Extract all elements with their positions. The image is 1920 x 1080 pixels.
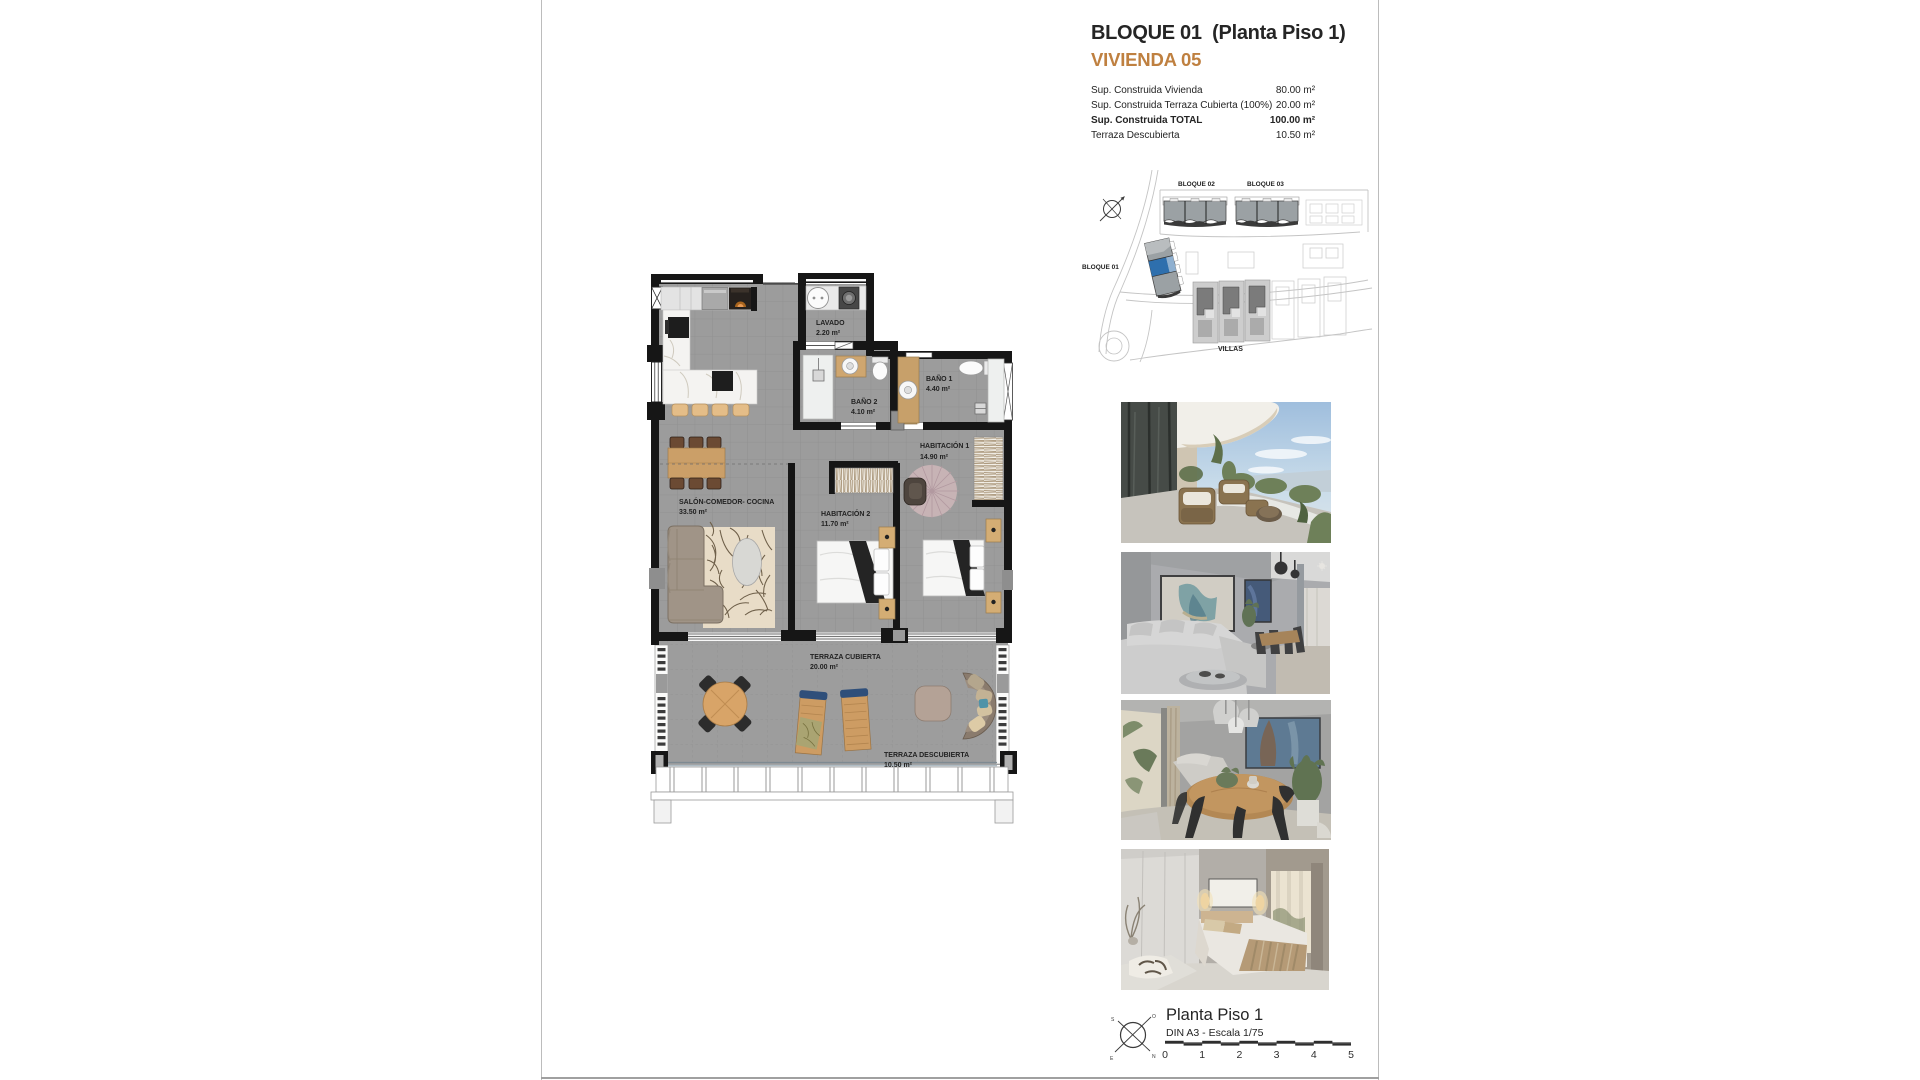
svg-text:SALÓN-COMEDOR- COCINA: SALÓN-COMEDOR- COCINA [679, 497, 774, 506]
svg-text:1: 1 [1199, 1049, 1205, 1061]
svg-text:20.00 m²: 20.00 m² [810, 664, 839, 671]
svg-text:HABITACIÓN 2: HABITACIÓN 2 [821, 509, 870, 518]
svg-text:4: 4 [1311, 1049, 1317, 1061]
svg-text:S: S [1111, 1017, 1115, 1023]
svg-text:N: N [1152, 1054, 1156, 1060]
svg-text:5: 5 [1348, 1049, 1354, 1061]
svg-text:4.10 m²: 4.10 m² [851, 409, 876, 416]
svg-text:3: 3 [1274, 1049, 1280, 1061]
svg-text:E: E [1110, 1056, 1114, 1062]
svg-text:10.50 m²: 10.50 m² [884, 762, 913, 769]
svg-text:14.90 m²: 14.90 m² [920, 454, 949, 461]
svg-text:BLOQUE 03: BLOQUE 03 [1247, 181, 1284, 188]
svg-text:HABITACIÓN 1: HABITACIÓN 1 [920, 441, 969, 450]
svg-text:VILLAS: VILLAS [1218, 346, 1243, 353]
svg-text:O: O [1152, 1014, 1156, 1020]
svg-text:LAVADO: LAVADO [816, 320, 845, 327]
svg-text:BAÑO 2: BAÑO 2 [851, 397, 878, 406]
svg-text:TERRAZA CUBIERTA: TERRAZA CUBIERTA [810, 654, 881, 661]
svg-text:11.70 m²: 11.70 m² [821, 521, 849, 528]
svg-text:2: 2 [1236, 1049, 1242, 1061]
svg-text:BLOQUE 01: BLOQUE 01 [1082, 264, 1119, 271]
svg-text:0: 0 [1162, 1049, 1168, 1061]
svg-text:2.20 m²: 2.20 m² [816, 330, 841, 337]
svg-text:TERRAZA DESCUBIERTA: TERRAZA DESCUBIERTA [884, 752, 969, 759]
svg-text:BLOQUE 02: BLOQUE 02 [1178, 181, 1215, 188]
svg-text:BAÑO 1: BAÑO 1 [926, 374, 953, 383]
svg-text:4.40 m²: 4.40 m² [926, 386, 951, 393]
svg-text:33.50 m²: 33.50 m² [679, 509, 708, 516]
